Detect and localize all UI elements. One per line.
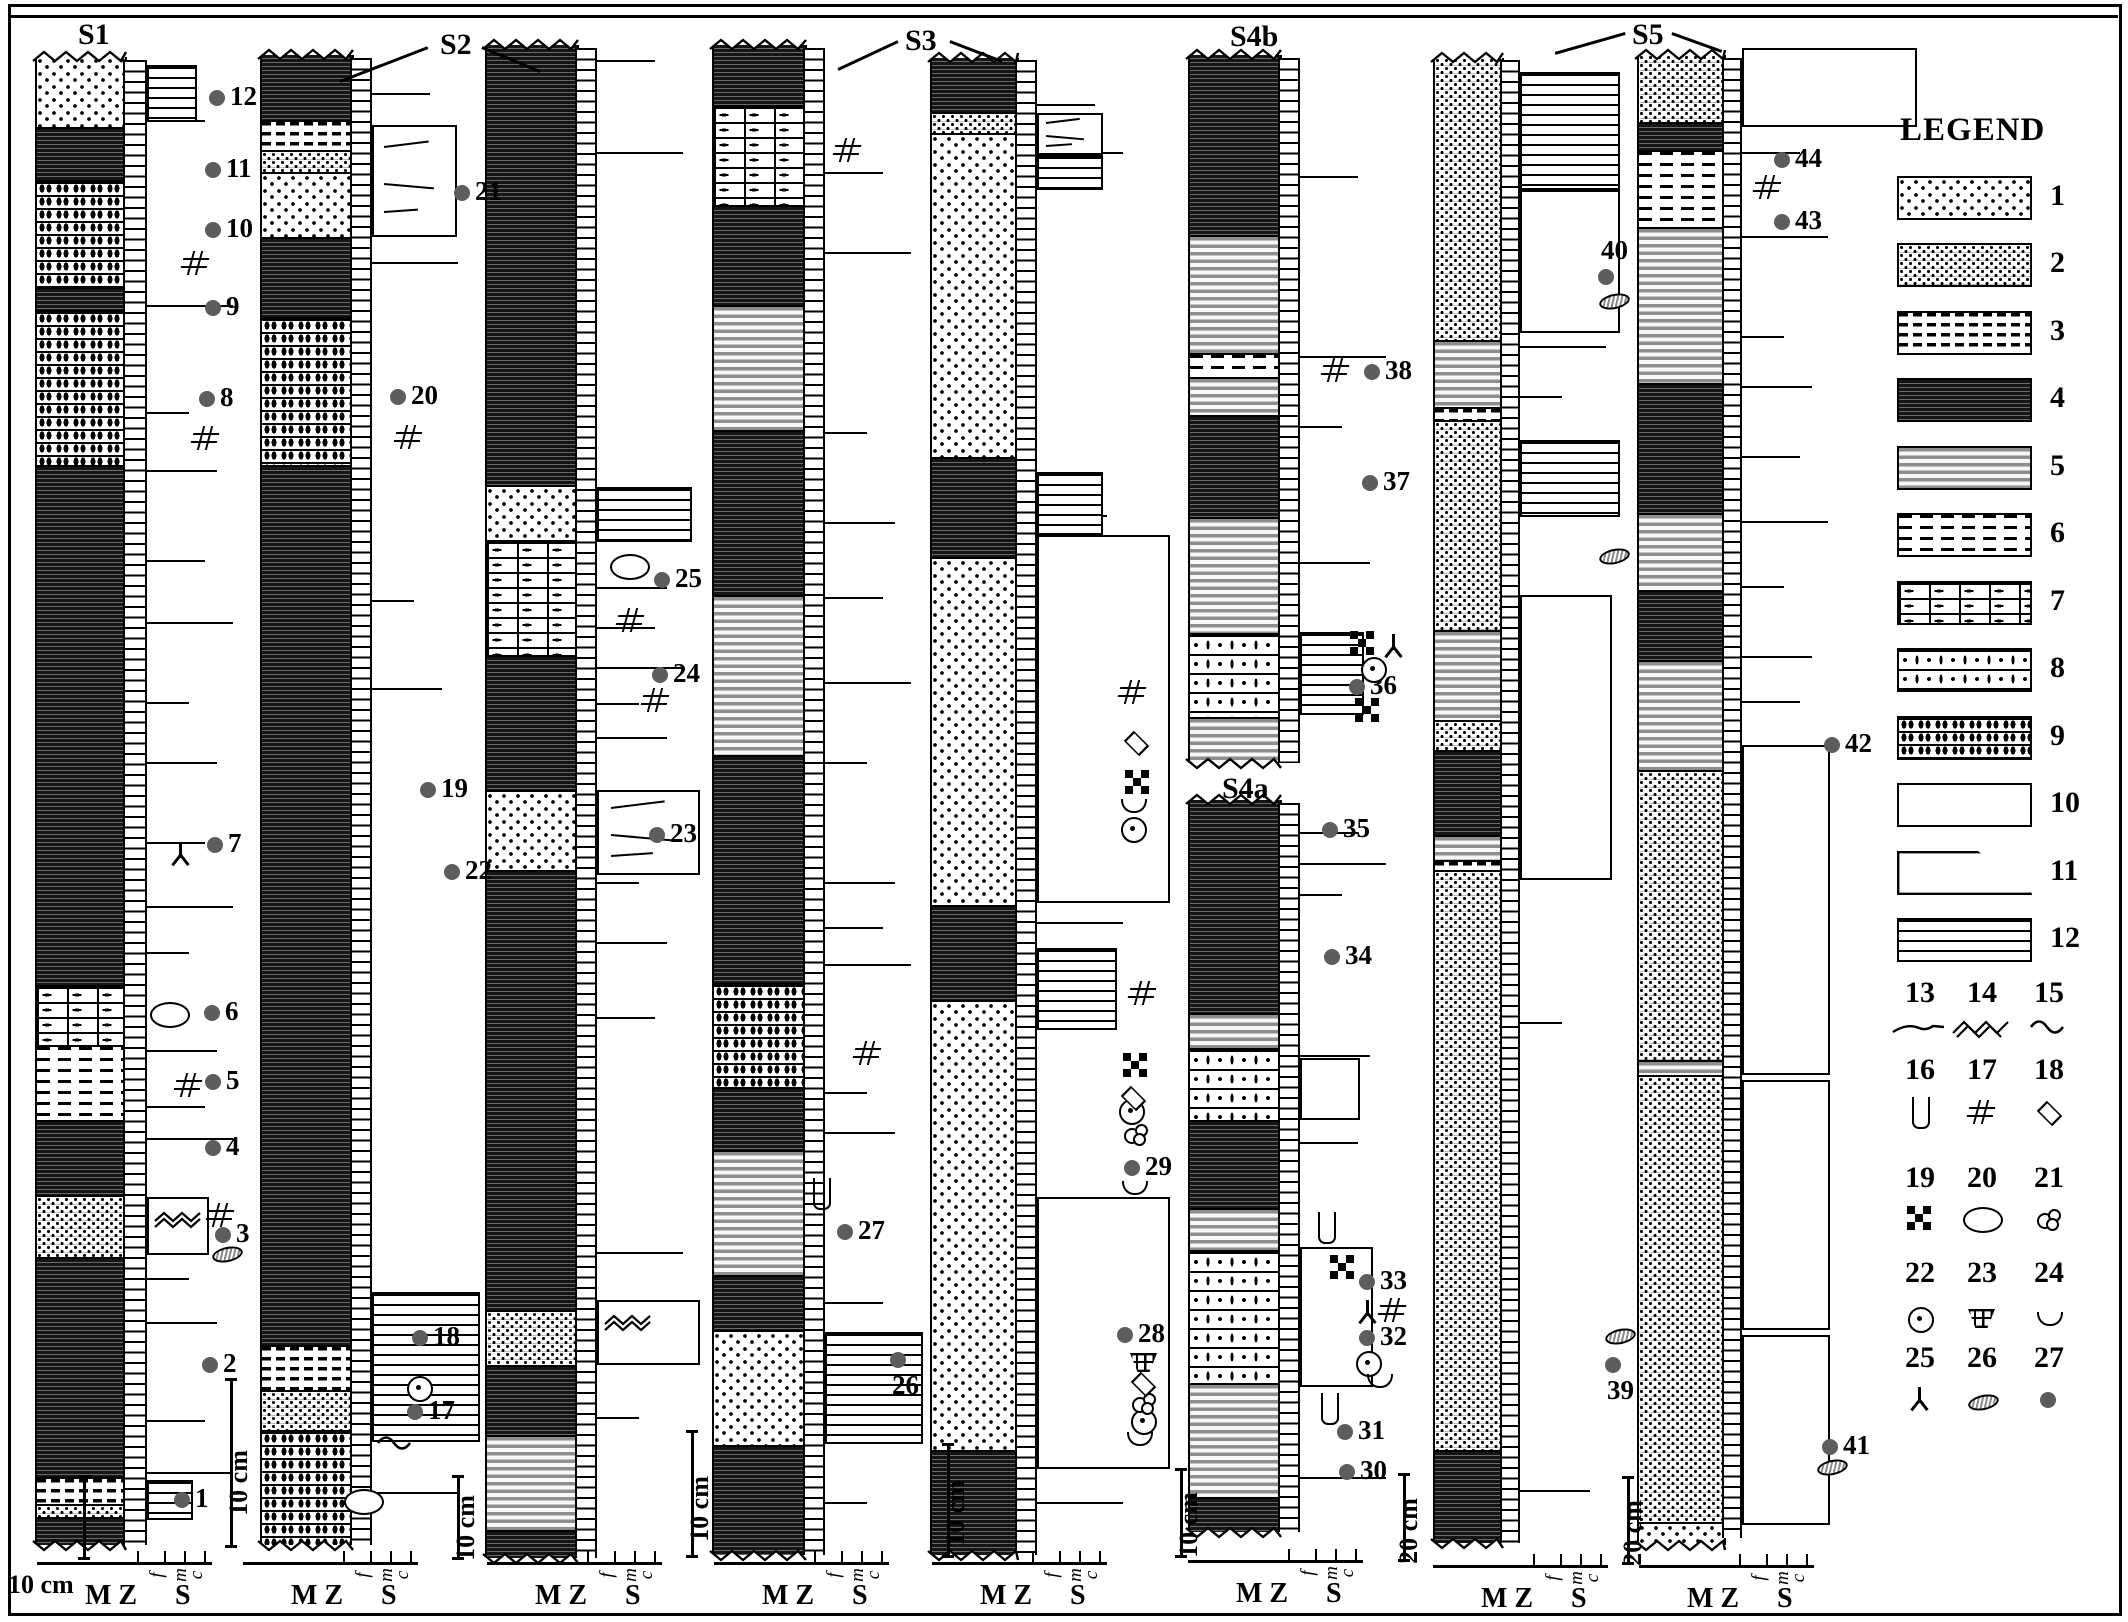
legend-number: 3 [2050, 314, 2065, 348]
bed-p9 [37, 310, 125, 465]
profile-tick [1300, 863, 1386, 865]
bed-p4 [714, 755, 805, 983]
profile-tick [1520, 1490, 1590, 1492]
flaser-lamination-icon [1046, 143, 1072, 147]
profile-tick [147, 1322, 217, 1324]
grainsize-axis-tick [1335, 1549, 1337, 1560]
bed-p5 [1435, 340, 1502, 407]
bed-expansion-lined [1520, 440, 1620, 517]
burrow-icon [1912, 1097, 1930, 1129]
bed-p4 [714, 205, 805, 305]
sample-number: 20 [411, 380, 438, 411]
bed-p4 [487, 870, 577, 1310]
grainsize-axis-tick [614, 1551, 616, 1562]
flaser-lamination-icon [1046, 135, 1084, 141]
profile-tick [1742, 152, 1800, 154]
sample-number: 9 [226, 291, 240, 322]
axis-sublabel-f: f [1298, 1570, 1320, 1575]
profile-tick [597, 1417, 639, 1419]
profile-tick [597, 1017, 655, 1019]
sample-number: 25 [675, 563, 702, 594]
bed-p5 [1639, 513, 1724, 590]
litho-column-S5-upper [1637, 55, 1726, 1545]
scale-bar-label: 10 cm [1174, 1492, 1204, 1558]
axis-sublabel-f: f [1042, 1572, 1064, 1577]
ragged-break-edge [710, 37, 806, 53]
profile-tick [1037, 922, 1123, 924]
bed-p8 [1190, 1250, 1280, 1383]
scale-bar-cap [1175, 1468, 1187, 1471]
bed-expansion-lined [1520, 72, 1620, 190]
sample-number: 11 [226, 153, 252, 184]
sample-dot [1322, 822, 1338, 838]
profile-tick [147, 906, 233, 908]
grainsize-axis-S1 [37, 1562, 212, 1565]
profile-tick [1037, 104, 1095, 106]
bed-p1 [487, 485, 577, 540]
sample-number: 22 [465, 855, 492, 886]
bed-p4 [1639, 122, 1724, 150]
bed-p2 [1639, 1075, 1724, 1522]
grainsize-axis-tick [1079, 1551, 1081, 1562]
sample-number: 2 [223, 1348, 237, 1379]
scale-bar-cap [1622, 1476, 1634, 1479]
plant-debris-icon [1383, 634, 1403, 660]
burrow-icon [813, 1178, 831, 1210]
axis-label-mudstone-siltstone: M Z [85, 1580, 137, 1612]
irregular-contact-icon [1893, 1021, 1945, 1035]
sample-number: 42 [1845, 728, 1872, 759]
ooid-cluster-icon [1124, 1123, 1146, 1143]
checkerboard-intraclast-icon [1907, 1206, 1931, 1230]
profile-tick [1300, 562, 1370, 564]
scale-bar-cap [1398, 1473, 1410, 1476]
sample-number: 28 [1138, 1318, 1165, 1349]
legend-number: 12 [2050, 921, 2080, 955]
flaser-lamination-icon [384, 141, 428, 149]
bed-p1 [932, 133, 1017, 457]
grainsize-axis-tick [654, 1551, 656, 1562]
profile-tick [1300, 1142, 1358, 1144]
sample-number: 33 [1380, 1265, 1407, 1296]
bed-p4 [262, 237, 352, 317]
nodule-ellipse-icon [344, 1489, 384, 1515]
legend-swatch-12 [1897, 918, 2032, 962]
grainsize-axis-tick [204, 1551, 206, 1562]
flaser-lamination-icon [611, 852, 653, 857]
bed-p5 [1190, 377, 1280, 415]
sample-dot [444, 864, 460, 880]
profile-tick [825, 682, 911, 684]
profile-tick [825, 1502, 867, 1504]
burrow-icon [1318, 1212, 1336, 1244]
bed-p4 [714, 1445, 805, 1555]
sample-dot [1324, 949, 1340, 965]
grainsize-axis-tick [1288, 1549, 1290, 1560]
bed-p2 [262, 1390, 352, 1430]
legend-number: 20 [1967, 1161, 1997, 1195]
bed-p4 [932, 905, 1017, 1000]
profile-tick [147, 1472, 233, 1474]
grainsize-axis-tick [343, 1551, 345, 1562]
checkerboard-intraclast-icon [1350, 631, 1374, 655]
bed-p9 [714, 983, 805, 1087]
sample-dot [1339, 1464, 1355, 1480]
legend-number: 5 [2050, 449, 2065, 483]
scale-bar-cap [78, 1557, 90, 1560]
bed-p8 [1190, 633, 1280, 717]
sample-dot [1774, 214, 1790, 230]
legend-swatch-10 [1897, 783, 2032, 827]
profile-tick [597, 703, 639, 705]
grainsize-axis-tick [390, 1551, 392, 1562]
axis-sublabel-f: f [597, 1572, 619, 1577]
section-label-S1: S1 [78, 18, 110, 52]
bed-p2 [487, 1310, 577, 1365]
profile-tick [597, 587, 667, 589]
legend-number: 19 [1905, 1161, 1935, 1195]
profile-tick [1520, 346, 1606, 348]
profile-tick [825, 432, 867, 434]
concentric-grain-icon [1908, 1307, 1934, 1333]
bed-p2 [262, 150, 352, 172]
grainsize-axis-tick [1315, 1549, 1317, 1560]
grainsize-axis-S2-upper [487, 1562, 662, 1565]
sample-dot [1349, 679, 1365, 695]
legend-number: 4 [2050, 381, 2065, 415]
sample-dot [1359, 1274, 1375, 1290]
legend-number: 25 [1905, 1341, 1935, 1375]
legend-swatch-9 [1897, 716, 2032, 760]
sample-number: 3 [236, 1218, 250, 1249]
profile-tick [825, 762, 867, 764]
concentric-grain-icon [1121, 817, 1147, 843]
bed-p8 [1190, 1048, 1280, 1120]
nodule-ellipse-icon [150, 1002, 190, 1028]
profile-tick [1742, 586, 1784, 588]
section-label-S2: S2 [440, 28, 472, 62]
sample-dot [837, 1224, 853, 1240]
legend-number: 17 [1967, 1053, 1997, 1087]
sample-dot [407, 1404, 423, 1420]
bed-p5 [1639, 660, 1724, 770]
flaser-lamination-icon [384, 209, 418, 214]
grainsize-axis-tick [1533, 1554, 1535, 1565]
profile-tick [372, 688, 442, 690]
sample-dot [205, 1074, 221, 1090]
profile-tick [147, 1106, 205, 1108]
burrow-icon [1321, 1393, 1339, 1425]
grainsize-axis-tick [1560, 1554, 1562, 1565]
sample-number: 31 [1358, 1415, 1385, 1446]
legend-number: 11 [2050, 854, 2078, 888]
bed-p1 [262, 172, 352, 237]
axis-sublabel-f: f [1543, 1575, 1565, 1580]
grainsize-axis-tick [861, 1551, 863, 1562]
litho-column-S3-lower [712, 45, 807, 1555]
sample-number: 8 [220, 382, 234, 413]
stratigraphic-figure: LEGEND M ZSfmc10 cmM ZSfmc10 cmM ZSfmc10… [0, 0, 2128, 1622]
profile-tick [825, 252, 911, 254]
sample-number: 6 [225, 996, 239, 1027]
bed-p4 [37, 465, 125, 985]
sample-number: 4 [226, 1131, 240, 1162]
concentric-grain-icon [1361, 657, 1387, 683]
sample-number: 24 [673, 658, 700, 689]
bed-p4 [487, 45, 577, 485]
bed-expansion-blank [1742, 1080, 1830, 1330]
sample-dot [420, 782, 436, 798]
bed-p6 [37, 1045, 125, 1120]
legend-number: 23 [1967, 1256, 1997, 1290]
bed-p2 [1435, 720, 1502, 750]
profile-tick [147, 762, 217, 764]
profile-tick [1520, 1022, 1562, 1024]
bed-expansion-lined [597, 487, 692, 542]
grainsize-axis-tick [1739, 1554, 1741, 1565]
grainsize-axis-tick [1600, 1554, 1602, 1565]
legend-number: 22 [1905, 1256, 1935, 1290]
bed-expansion-blank [1300, 1058, 1360, 1120]
legend-number: 10 [2050, 786, 2080, 820]
legend-number: 18 [2034, 1053, 2064, 1087]
stylolite-zigzag-icon [1953, 1017, 2009, 1039]
profile-tick [147, 1278, 189, 1280]
axis-sublabel-f: f [147, 1572, 169, 1577]
bed-p2 [1639, 55, 1724, 122]
profile-tick [147, 952, 189, 954]
bed-p1 [932, 1000, 1017, 1450]
bed-p5 [714, 595, 805, 755]
bed-p3 [1435, 860, 1502, 870]
sample-number: 1 [195, 1483, 209, 1514]
bed-p3 [1435, 407, 1502, 420]
sample-number: 27 [858, 1215, 885, 1246]
bed-p1 [487, 790, 577, 870]
profile-tick [372, 1492, 458, 1494]
bed-p4 [37, 1120, 125, 1195]
checkerboard-intraclast-icon [1355, 698, 1379, 722]
profile-tick [1742, 236, 1828, 238]
sample-dot [205, 1140, 221, 1156]
weathering-profile-S1 [123, 60, 147, 1545]
profile-tick [147, 702, 189, 704]
legend-number: 24 [2034, 1256, 2064, 1290]
checkerboard-intraclast-icon [1125, 770, 1149, 794]
legend-swatch-3 [1897, 311, 2032, 355]
undulose-surface-icon [378, 1435, 412, 1453]
bed-expansion-blank [1742, 745, 1830, 1075]
scale-bar-label: 10 cm [941, 1480, 971, 1546]
sample-number: 10 [226, 213, 253, 244]
legend-number: 9 [2050, 719, 2065, 753]
sample-dot [1337, 1424, 1353, 1440]
weathering-profile-S2-lower [350, 58, 372, 1545]
sample-dot [1824, 737, 1840, 753]
profile-tick [372, 600, 414, 602]
sample-dot [412, 1330, 428, 1346]
bed-p2 [37, 1504, 125, 1517]
profile-tick [825, 964, 911, 966]
grainsize-axis-tick [137, 1551, 139, 1562]
sample-dot [205, 162, 221, 178]
legend-swatch-8 [1897, 648, 2032, 692]
legend-number: 2 [2050, 246, 2065, 280]
sample-dot [215, 1227, 231, 1243]
bed-p3 [262, 120, 352, 150]
bed-expansion-lined [1037, 472, 1103, 535]
stylolite-zigzag-icon [605, 1314, 651, 1340]
grainsize-axis-tick [184, 1551, 186, 1562]
legend-swatch-1 [1897, 176, 2032, 220]
profile-tick [147, 1138, 233, 1140]
litho-column-S2-lower [260, 55, 354, 1545]
profile-tick [1520, 396, 1562, 398]
bed-p4 [262, 55, 352, 120]
grainsize-axis-tick [1059, 1551, 1061, 1562]
axis-label-sandstone: S [381, 1580, 397, 1612]
figure-border-inner-line [8, 15, 2118, 18]
grainsize-axis-tick [370, 1551, 372, 1562]
bed-p7 [714, 105, 805, 205]
profile-tick [597, 667, 683, 669]
sample-dot [204, 1005, 220, 1021]
sample-number: 40 [1601, 235, 1628, 266]
grainsize-axis-S3-upper [932, 1562, 1107, 1565]
ragged-break-edge [483, 37, 578, 53]
bed-p5 [1435, 630, 1502, 720]
bed-p5 [1190, 517, 1280, 633]
weathering-profile-S5-lower [1500, 60, 1520, 1543]
sample-number: 5 [226, 1065, 240, 1096]
profile-tick [1037, 1502, 1123, 1504]
legend-swatch-5 [1897, 446, 2032, 490]
bed-p1 [714, 1330, 805, 1445]
profile-tick [1742, 336, 1784, 338]
axis-label-sandstone: S [1777, 1583, 1793, 1615]
sample-number: 12 [230, 81, 257, 112]
sample-dot [2040, 1392, 2056, 1408]
bed-p5 [487, 1435, 577, 1530]
ooid-cluster-icon [2037, 1208, 2059, 1228]
litho-column-S3-upper [930, 58, 1019, 1555]
undulose-surface-icon [2031, 1019, 2065, 1037]
bed-p4 [1639, 383, 1724, 513]
grainsize-axis-tick [410, 1551, 412, 1562]
sample-dot [174, 1492, 190, 1508]
sample-number: 35 [1343, 813, 1370, 844]
legend-swatch-2 [1897, 243, 2032, 287]
axis-sublabel-c: c [1788, 1574, 1810, 1582]
checkerboard-intraclast-icon [1330, 1255, 1354, 1279]
profile-tick [825, 597, 883, 599]
bed-expansion-zigzag [597, 1300, 700, 1365]
sample-dot [390, 389, 406, 405]
scale-bar-label: 20 cm [1394, 1498, 1424, 1564]
bed-expansion-blank [1742, 48, 1917, 127]
bed-p5 [714, 1150, 805, 1275]
bed-p4 [1639, 590, 1724, 660]
axis-label-mudstone-siltstone: M Z [762, 1580, 814, 1612]
axis-label-sandstone: S [1326, 1578, 1342, 1610]
scale-bar-cap [942, 1555, 954, 1558]
grainsize-axis-tick [841, 1551, 843, 1562]
bed-p5 [1639, 227, 1724, 383]
bed-p9 [37, 180, 125, 287]
bed-p4 [714, 430, 805, 595]
profile-tick [1300, 426, 1342, 428]
grainsize-axis-S3-lower [714, 1562, 889, 1565]
weathering-profile-S5-upper [1722, 58, 1742, 1538]
legend-number: 27 [2034, 1341, 2064, 1375]
sample-number: 37 [1383, 466, 1410, 497]
bed-p4 [37, 287, 125, 310]
litho-column-S4a [1188, 800, 1282, 1532]
profile-tick [597, 152, 683, 154]
legend-swatch-6 [1897, 513, 2032, 557]
bed-p5 [1190, 1013, 1280, 1048]
grainsize-axis-tick [814, 1551, 816, 1562]
legend-number: 7 [2050, 584, 2065, 618]
weathering-profile-S2-upper [575, 48, 597, 1558]
sample-dot [649, 827, 665, 843]
profile-tick [147, 622, 233, 624]
sample-dot [205, 300, 221, 316]
ragged-break-edge [928, 50, 1018, 66]
sample-dot [205, 222, 221, 238]
scale-bar-label: 20 cm [1618, 1500, 1648, 1566]
axis-sublabel-c: c [863, 1571, 885, 1579]
axis-label-mudstone-siltstone: M Z [980, 1580, 1032, 1612]
bed-p5 [1435, 835, 1502, 860]
bed-p4 [714, 1087, 805, 1150]
profile-tick [597, 942, 667, 944]
bed-p4 [932, 58, 1017, 112]
bed-expansion-flaser [372, 125, 457, 237]
bed-expansion-lined [147, 65, 197, 122]
bed-p6 [1190, 353, 1280, 377]
ragged-break-edge [928, 1547, 1018, 1563]
axis-sublabel-f: f [1749, 1575, 1771, 1580]
flaser-lamination-icon [611, 800, 665, 809]
sample-number: 26 [892, 1370, 919, 1401]
profile-tick [1300, 176, 1358, 178]
sample-dot [652, 667, 668, 683]
sample-dot [890, 1352, 906, 1368]
axis-label-sandstone: S [175, 1580, 191, 1612]
bed-p4 [714, 1275, 805, 1330]
ragged-break-edge [710, 1547, 806, 1563]
profile-tick [825, 172, 883, 174]
sample-number: 21 [475, 176, 502, 207]
bed-p4 [37, 1257, 125, 1477]
nodule-ellipse-icon [610, 554, 650, 580]
sample-dot [1359, 1330, 1375, 1346]
litho-column-S2-upper [485, 45, 579, 1558]
sample-number: 19 [441, 773, 468, 804]
plant-debris-icon [1357, 1300, 1377, 1326]
sample-dot [1124, 1160, 1140, 1176]
legend-number: 6 [2050, 516, 2065, 550]
bed-p7 [487, 540, 577, 655]
ragged-break-edge [1431, 50, 1503, 66]
grainsize-axis-tick [1786, 1554, 1788, 1565]
profile-tick [1742, 456, 1800, 458]
profile-tick [597, 60, 655, 62]
sample-number: 32 [1380, 1321, 1407, 1352]
sample-dot [199, 391, 215, 407]
bed-p2 [932, 112, 1017, 133]
